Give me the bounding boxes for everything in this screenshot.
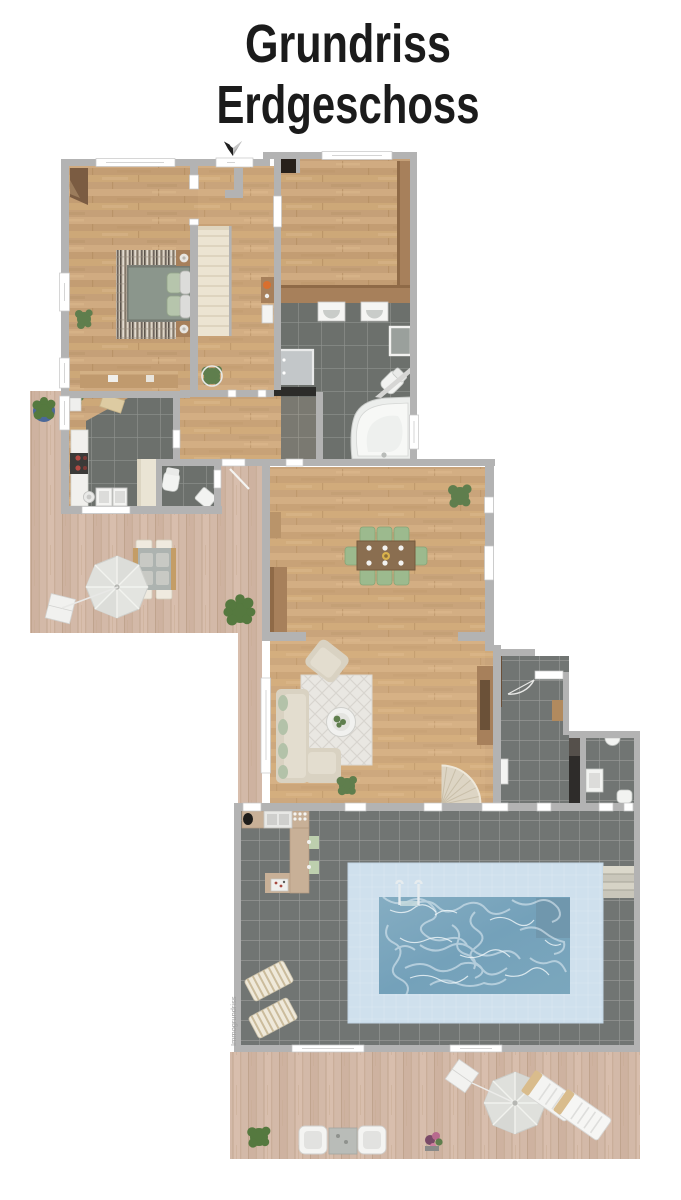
svg-text:Immogrundriss: Immogrundriss bbox=[229, 996, 238, 1046]
svg-text:Grundriss: Grundriss bbox=[245, 14, 451, 74]
svg-text:Erdgeschoss: Erdgeschoss bbox=[217, 75, 480, 135]
